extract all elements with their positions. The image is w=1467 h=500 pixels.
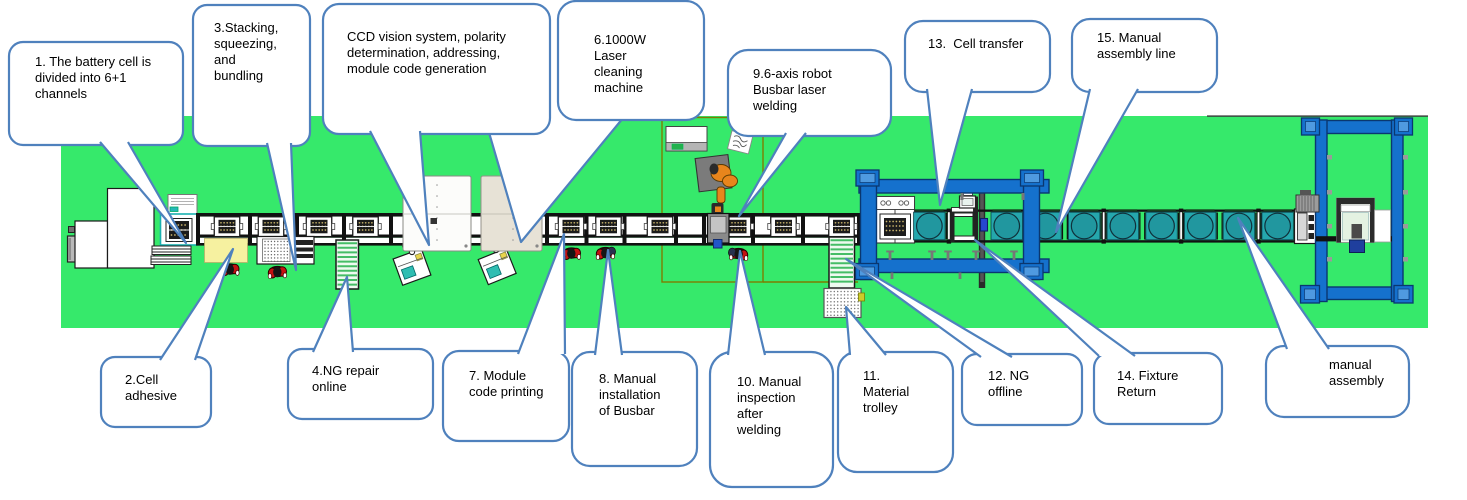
svg-text:and: and bbox=[214, 52, 236, 67]
svg-text:cleaning: cleaning bbox=[594, 64, 642, 79]
svg-text:channels: channels bbox=[35, 86, 88, 101]
svg-text:Material: Material bbox=[863, 384, 909, 399]
svg-text:7. Module: 7. Module bbox=[469, 368, 526, 383]
svg-text:12. NG: 12. NG bbox=[988, 368, 1029, 383]
svg-text:9.6-axis robot: 9.6-axis robot bbox=[753, 66, 832, 81]
svg-text:4.NG repair: 4.NG repair bbox=[312, 363, 380, 378]
svg-text:3.Stacking,: 3.Stacking, bbox=[214, 20, 278, 35]
svg-text:2.Cell: 2.Cell bbox=[125, 372, 158, 387]
svg-text:determination, addressing,: determination, addressing, bbox=[347, 45, 500, 60]
svg-text:1. The battery cell is: 1. The battery cell is bbox=[35, 54, 152, 69]
svg-text:of Busbar: of Busbar bbox=[599, 403, 655, 418]
svg-text:14. Fixture: 14. Fixture bbox=[1117, 368, 1178, 383]
svg-text:machine: machine bbox=[594, 80, 643, 95]
svg-text:inspection: inspection bbox=[737, 390, 796, 405]
svg-text:module code generation: module code generation bbox=[347, 61, 487, 76]
svg-text:assembly: assembly bbox=[1329, 373, 1384, 388]
svg-text:after: after bbox=[737, 406, 764, 421]
svg-text:offline: offline bbox=[988, 384, 1022, 399]
svg-text:assembly line: assembly line bbox=[1097, 46, 1176, 61]
svg-text:Laser: Laser bbox=[594, 48, 627, 63]
svg-text:trolley: trolley bbox=[863, 400, 898, 415]
svg-text:11.: 11. bbox=[863, 368, 880, 383]
svg-text:bundling: bundling bbox=[214, 68, 263, 83]
svg-text:6.1000W: 6.1000W bbox=[594, 32, 647, 47]
svg-text:Busbar laser: Busbar laser bbox=[753, 82, 827, 97]
svg-text:installation: installation bbox=[599, 387, 660, 402]
svg-text:online: online bbox=[312, 379, 347, 394]
svg-text:welding: welding bbox=[736, 422, 781, 437]
svg-text:10. Manual: 10. Manual bbox=[737, 374, 801, 389]
svg-text:8. Manual: 8. Manual bbox=[599, 371, 656, 386]
svg-text:code printing: code printing bbox=[469, 384, 543, 399]
svg-text:divided into 6+1: divided into 6+1 bbox=[35, 70, 126, 85]
svg-text:Return: Return bbox=[1117, 384, 1156, 399]
svg-text:manual: manual bbox=[1329, 357, 1372, 372]
svg-text:15. Manual: 15. Manual bbox=[1097, 30, 1161, 45]
svg-text:welding: welding bbox=[752, 98, 797, 113]
svg-text:squeezing,: squeezing, bbox=[214, 36, 277, 51]
svg-text:CCD vision system, polarity: CCD vision system, polarity bbox=[347, 29, 506, 44]
svg-text:adhesive: adhesive bbox=[125, 388, 177, 403]
svg-text:13. Cell transfer: 13. Cell transfer bbox=[928, 36, 1024, 51]
